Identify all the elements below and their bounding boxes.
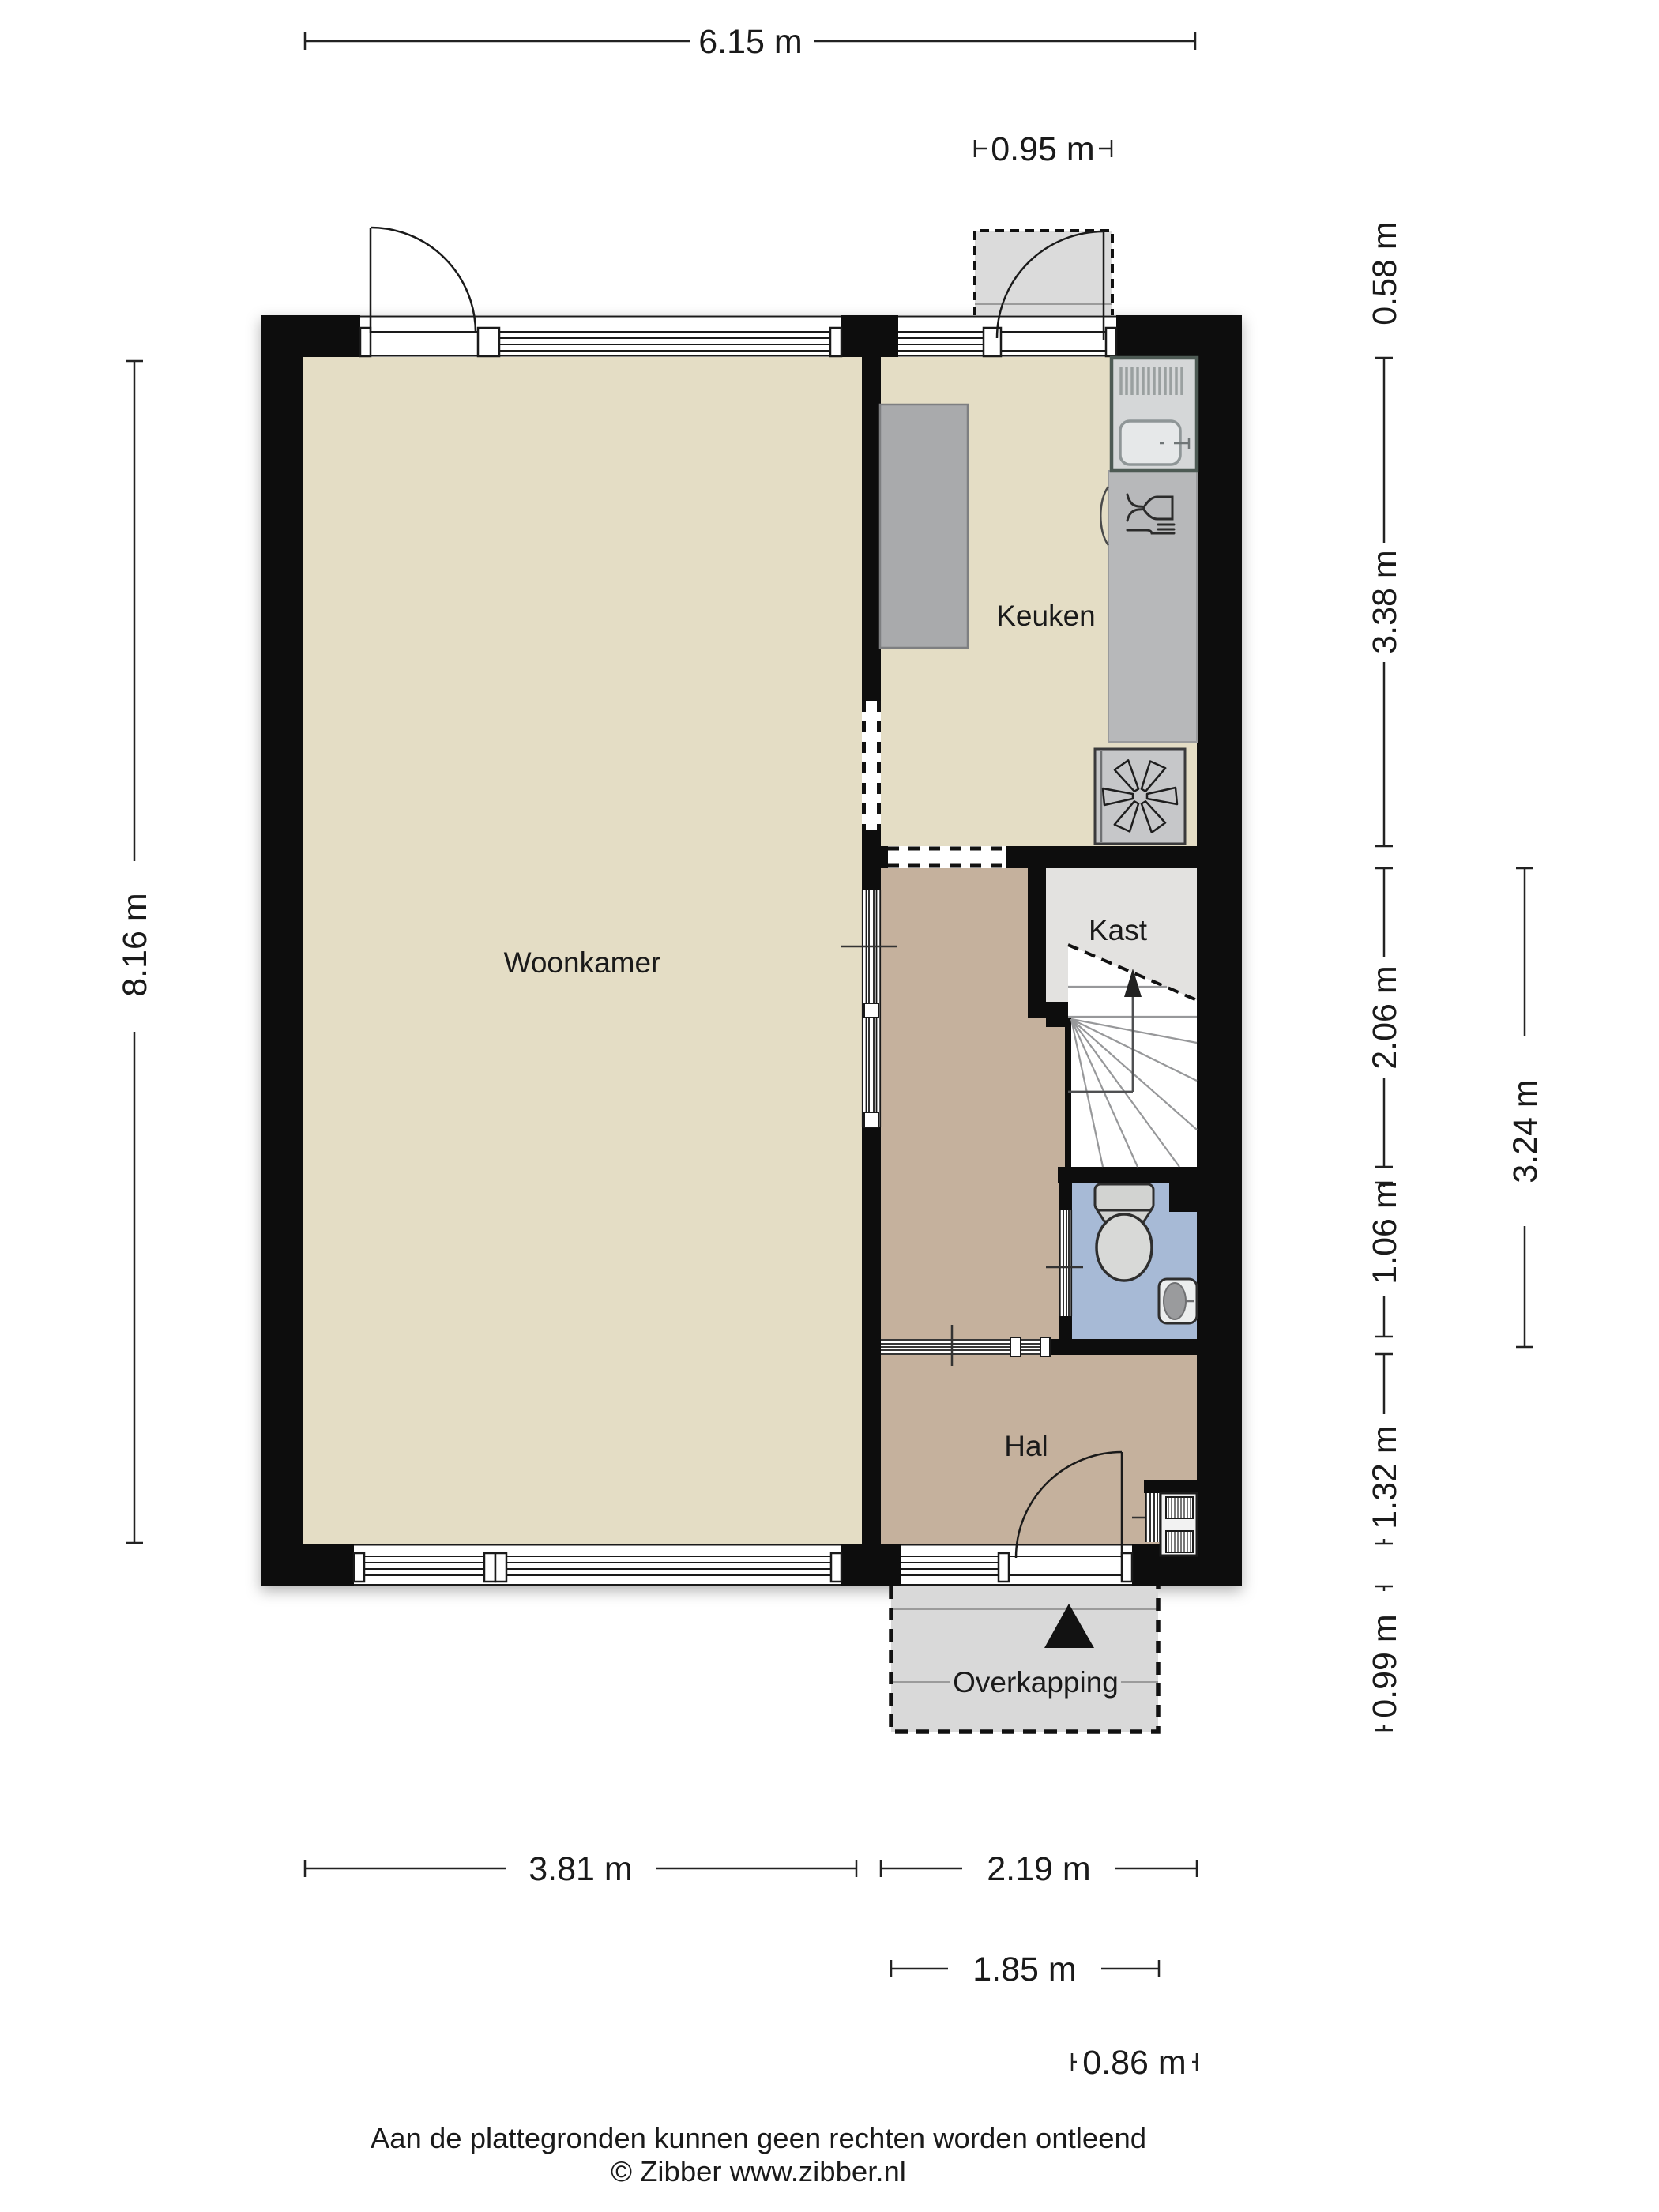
- svg-text:3.24 m: 3.24 m: [1507, 1079, 1544, 1183]
- svg-text:0.86 m: 0.86 m: [1082, 2044, 1186, 2082]
- svg-text:0.99 m: 0.99 m: [1366, 1614, 1404, 1717]
- svg-text:© Zibber www.zibber.nl: © Zibber www.zibber.nl: [611, 2155, 906, 2188]
- svg-text:2.06 m: 2.06 m: [1366, 965, 1404, 1069]
- svg-text:3.81 m: 3.81 m: [529, 1850, 632, 1888]
- svg-text:Aan de plattegronden kunnen ge: Aan de plattegronden kunnen geen rechten…: [371, 2122, 1146, 2154]
- svg-text:Hal: Hal: [1004, 1430, 1048, 1462]
- svg-text:Woonkamer: Woonkamer: [504, 946, 661, 979]
- svg-text:1.85 m: 1.85 m: [972, 1951, 1076, 1988]
- svg-text:0.58 m: 0.58 m: [1366, 221, 1404, 325]
- svg-text:0.95 m: 0.95 m: [991, 130, 1094, 168]
- svg-text:1.32 m: 1.32 m: [1366, 1425, 1404, 1529]
- svg-text:Overkapping: Overkapping: [953, 1666, 1119, 1698]
- svg-text:6.15 m: 6.15 m: [698, 23, 802, 61]
- svg-text:3.38 m: 3.38 m: [1366, 550, 1404, 653]
- svg-text:1.06 m: 1.06 m: [1366, 1180, 1404, 1284]
- svg-text:Keuken: Keuken: [996, 600, 1096, 632]
- svg-text:Kast: Kast: [1089, 914, 1148, 946]
- svg-text:2.19 m: 2.19 m: [987, 1850, 1090, 1888]
- svg-text:8.16 m: 8.16 m: [116, 893, 154, 996]
